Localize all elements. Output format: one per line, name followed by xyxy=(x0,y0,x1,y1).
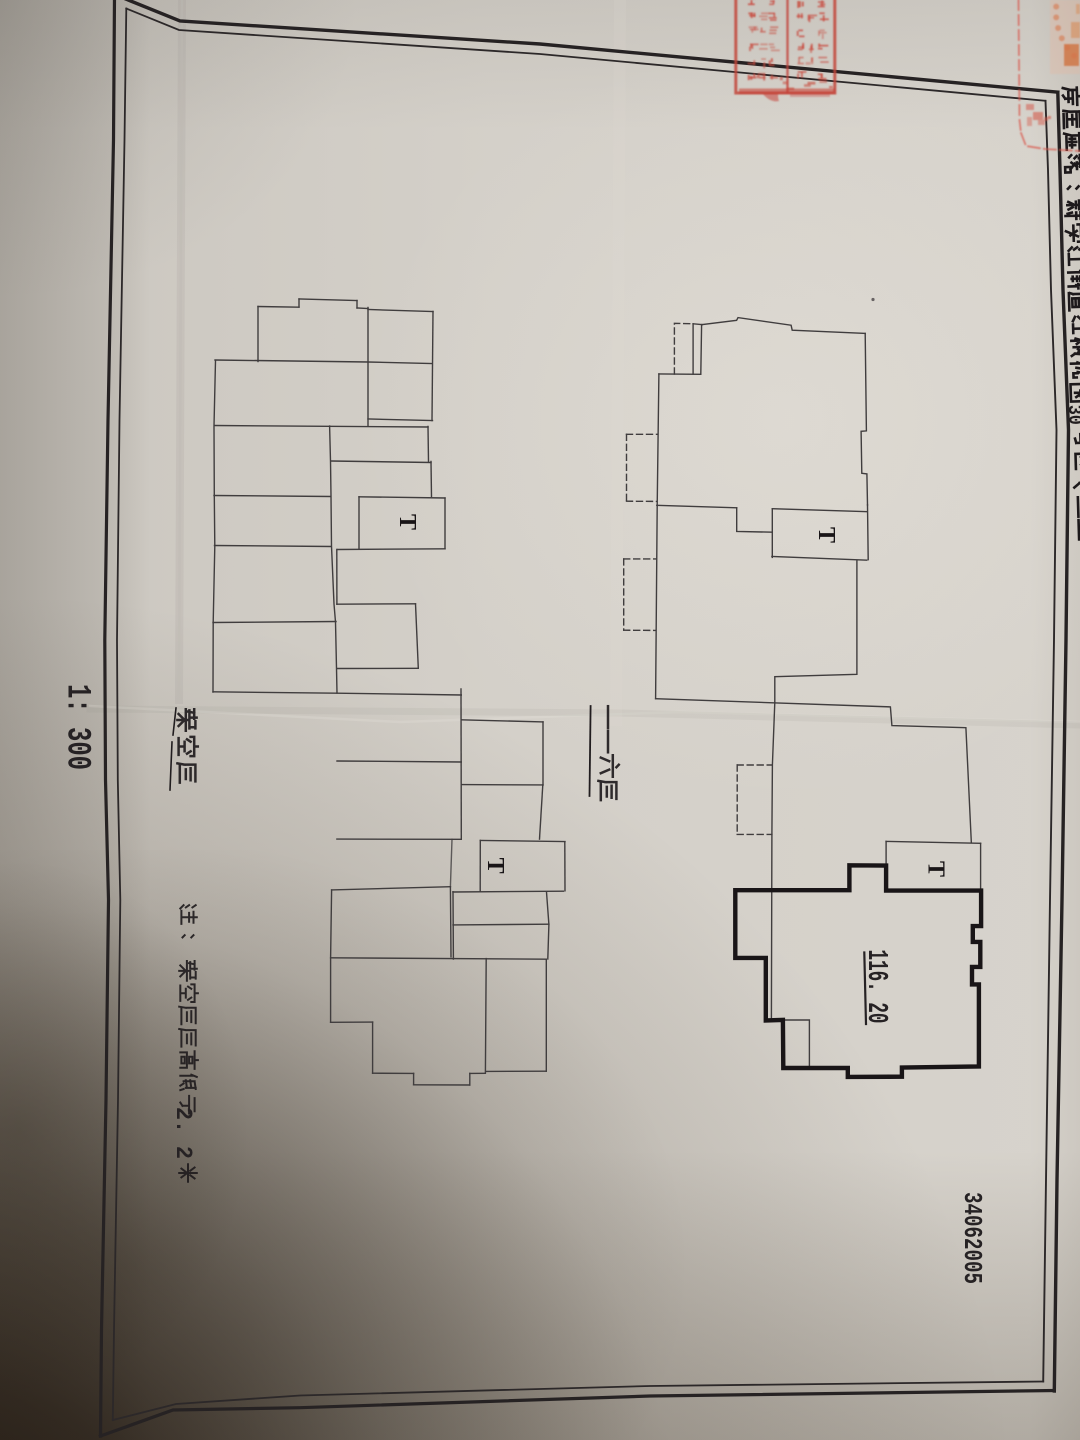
svg-text:2. 2: 2. 2 xyxy=(170,1107,196,1159)
svg-text:34062005: 34062005 xyxy=(957,1192,987,1284)
svg-text:T: T xyxy=(394,514,420,530)
svg-text:T: T xyxy=(922,861,948,877)
svg-text:30: 30 xyxy=(1062,405,1080,426)
svg-text:T: T xyxy=(813,527,839,543)
svg-text:1: 300: 1: 300 xyxy=(58,684,96,770)
svg-text:T: T xyxy=(482,858,508,874)
